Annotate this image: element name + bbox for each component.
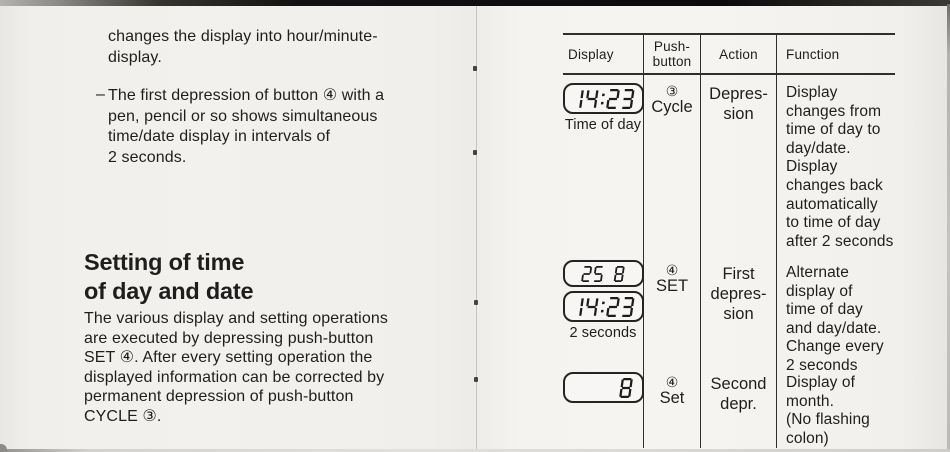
table-row-2-display: 2 seconds bbox=[563, 257, 644, 369]
lcd-display-time-alt bbox=[563, 291, 644, 322]
staple-mark bbox=[474, 300, 478, 305]
push-button-label: SET bbox=[656, 278, 688, 295]
lcd-caption: 2 seconds bbox=[570, 325, 637, 341]
lcd-display-month bbox=[563, 372, 644, 403]
table-row-2-function: Alternatedisplay oftime of dayand day/da… bbox=[777, 257, 895, 369]
table-row-1-action: Depres-sion bbox=[701, 75, 777, 257]
paragraph-first-depression: The first depression of button ④ with ap… bbox=[108, 86, 384, 168]
table-row-3-function: Display of month.(No flashingcolon) bbox=[777, 369, 895, 448]
lcd-caption: Time of day bbox=[565, 117, 641, 133]
column-header-display: Display bbox=[563, 35, 644, 75]
table-row-1-push-button: ③ Cycle bbox=[644, 75, 701, 257]
table-row-3-display bbox=[563, 369, 644, 448]
table-row-2-push-button: ④ SET bbox=[644, 257, 701, 369]
table-row-2-action: Firstdepres-sion bbox=[701, 257, 777, 369]
paragraph-setting-description: The various display and setting operatio… bbox=[84, 309, 388, 427]
circled-4-icon: ④ bbox=[666, 263, 679, 278]
push-button-label: Cycle bbox=[651, 99, 692, 116]
push-button-label: Set bbox=[660, 390, 685, 407]
column-header-action: Action bbox=[701, 35, 777, 75]
table-row-1-function: Displaychanges fromtime of day today/dat… bbox=[777, 75, 895, 257]
column-header-function: Function bbox=[777, 35, 895, 75]
lcd-display-day-date bbox=[563, 260, 644, 287]
table-row-3-push-button: ④ Set bbox=[644, 369, 701, 448]
bullet-dash: – bbox=[96, 86, 105, 104]
photo-top-edge bbox=[0, 0, 950, 6]
lcd-digits bbox=[570, 89, 636, 109]
operations-table: Display Push-button Action Function Time… bbox=[563, 33, 895, 426]
column-header-push-button: Push-button bbox=[644, 35, 701, 75]
paragraph-hour-minute: changes the display into hour/minute-dis… bbox=[108, 27, 378, 68]
photo-corner-mark bbox=[0, 444, 7, 452]
staple-mark bbox=[473, 150, 477, 155]
staple-mark bbox=[473, 66, 477, 71]
booklet-scan: changes the display into hour/minute-dis… bbox=[0, 0, 950, 452]
lcd-digits bbox=[581, 266, 626, 282]
staple-mark bbox=[474, 377, 478, 382]
table-row-1-display: Time of day bbox=[563, 75, 644, 257]
circled-3-icon: ③ bbox=[666, 84, 679, 99]
circled-4-icon: ④ bbox=[666, 375, 679, 390]
booklet-gutter bbox=[476, 6, 477, 449]
lcd-digits bbox=[619, 378, 634, 398]
table-row-3-action: Seconddepr. bbox=[701, 369, 777, 448]
lcd-display-time-of-day bbox=[563, 83, 644, 114]
lcd-digits bbox=[570, 297, 636, 317]
section-heading: Setting of timeof day and date bbox=[84, 248, 253, 305]
